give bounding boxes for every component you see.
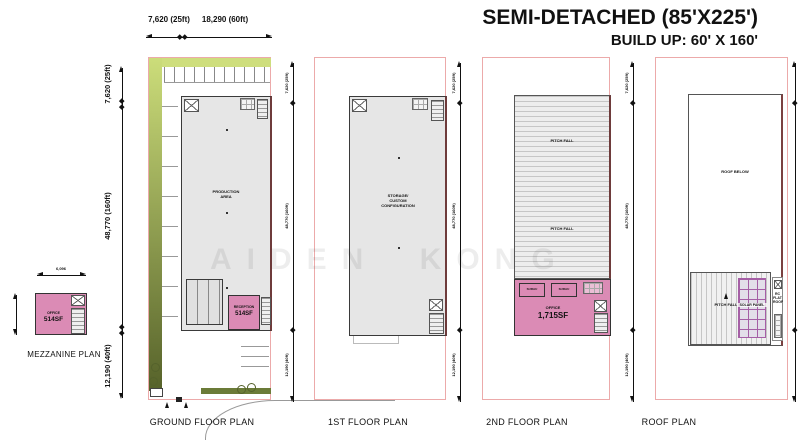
page-title: SEMI-DETACHED (85'X225'): [482, 6, 758, 30]
dimension-tick: [457, 100, 462, 105]
vent-grid: [774, 314, 782, 338]
landscape-strip-bottom: [201, 388, 271, 394]
vent-icon: [774, 280, 782, 289]
lift-shaft-icon: [429, 299, 443, 311]
pitched-roof: PITCH FALL SOLAR PANEL: [690, 272, 771, 345]
second-floor-plan-label: 2ND FLOOR PLAN: [486, 417, 568, 427]
pitch-fall-label: PITCH FALL: [515, 226, 609, 231]
dim-label-25ft: 7,620 (25ft): [144, 15, 194, 24]
staircase: [431, 100, 444, 121]
arrow-icon: [457, 396, 461, 402]
dimension-tick: [630, 327, 635, 332]
first-floor-plan: STORAGE/ CUSTOM CONFIGURATION: [314, 57, 446, 400]
staircase: [261, 297, 271, 325]
roof-plan-label: ROOF PLAN: [642, 417, 697, 427]
tree-icon: [149, 377, 158, 386]
column-dot: [398, 157, 400, 159]
dim-label-small: 12,190 (40ft): [623, 343, 631, 387]
dimension-line: [37, 275, 86, 276]
dimension-line: [633, 63, 634, 402]
landscape-strip-top: [162, 58, 271, 67]
dim-label-small: 48,770 (160ft): [450, 194, 458, 238]
parking-bays-top: [164, 67, 270, 83]
page-subtitle: BUILD UP: 60' X 160': [611, 32, 758, 49]
entry-arrow-icon: [165, 402, 169, 408]
roof-plan: ROOF BELOW PITCH FALL SOLAR PANEL RC FLA…: [655, 57, 788, 400]
surau-label: SURAU: [552, 288, 576, 292]
office-area-label: 514SF: [38, 316, 69, 324]
staircase: [71, 308, 85, 334]
toilet-block: [240, 98, 255, 110]
reception-room: RECEPTION 514SF: [228, 295, 260, 330]
dim-label-60ft: 18,290 (60ft): [196, 15, 254, 24]
guard-house: [150, 388, 163, 397]
parking-bay-line: [162, 166, 178, 167]
arrow-icon: [119, 66, 123, 72]
office-label: OFFICE: [38, 311, 69, 315]
lift-shaft-icon: [594, 300, 607, 312]
arrow-icon: [792, 61, 796, 67]
landscape-strip-left: [149, 58, 162, 391]
dimension-line: [460, 63, 461, 402]
canopy-outline: [353, 336, 399, 344]
toilet-block: [412, 98, 428, 110]
staircase: [257, 99, 268, 119]
tree-icon: [237, 385, 246, 394]
dim-label-small: 7,620 (25ft): [283, 61, 291, 105]
floor-plan-sheet: SEMI-DETACHED (85'X225') BUILD UP: 60' X…: [0, 0, 800, 443]
dim-label-small: 7,620 (25ft): [623, 61, 631, 105]
arrow-icon: [630, 396, 634, 402]
dimension-tick: [792, 327, 797, 332]
dimension-line: [293, 63, 294, 402]
parking-bay-line: [162, 196, 178, 197]
second-floor-office: SURAU SURAU OFFICE 1,715SF: [514, 279, 611, 336]
mezzanine-width-dim: 6,096: [43, 266, 79, 271]
dimension-tick: [119, 104, 124, 109]
toilet-block: [583, 282, 603, 294]
arrow-icon: [80, 272, 86, 276]
staircase: [429, 313, 444, 334]
dimension-line: [122, 68, 123, 398]
arrow-icon: [792, 396, 796, 402]
roof-below-label: ROOF BELOW: [689, 169, 781, 174]
dimension-tick: [119, 330, 124, 335]
parking-bay-line: [162, 286, 178, 287]
pitch-direction-arrow-icon: [724, 293, 728, 299]
arrow-icon: [290, 396, 294, 402]
rc-flat-roof-label: RC FLAT ROOF: [773, 292, 782, 305]
dimension-tick: [119, 98, 124, 103]
arrow-icon: [37, 272, 43, 276]
arrow-icon: [266, 34, 272, 38]
arrow-icon: [13, 293, 17, 299]
dim-label-160ft-vertical: 48,770 (160ft): [103, 186, 113, 246]
arrow-icon: [13, 329, 17, 335]
pitch-fall-label: PITCH FALL: [515, 138, 609, 143]
solar-panel-label: SOLAR PANEL: [737, 303, 767, 307]
dim-label-small: 12,190 (40ft): [283, 343, 291, 387]
roof-deck: PITCH FALL PITCH FALL: [514, 95, 611, 279]
parking-bay-line: [162, 226, 178, 227]
dimension-line: [795, 63, 796, 402]
ground-floor-plan: PRODUCTION AREA RECEPTION 514SF: [148, 57, 271, 400]
first-floor-plan-label: 1ST FLOOR PLAN: [328, 417, 408, 427]
dim-label-small: 7,620 (25ft): [450, 61, 458, 105]
arrow-icon: [119, 393, 123, 399]
storage-hall: STORAGE/ CUSTOM CONFIGURATION: [349, 96, 447, 336]
dimension-tick: [290, 327, 295, 332]
office-area-label: 1,715SF: [523, 311, 583, 321]
parking-bay-line: [162, 136, 178, 137]
dimension-tick: [290, 100, 295, 105]
dimension-line: [146, 37, 272, 38]
dimension-tick: [457, 327, 462, 332]
reception-area-label: 514SF: [229, 311, 259, 319]
column-dot: [226, 287, 228, 289]
mezzanine-plan-label: MEZZANINE PLAN: [27, 350, 101, 359]
dimension-tick: [630, 100, 635, 105]
roof-outline: ROOF BELOW PITCH FALL SOLAR PANEL RC FLA…: [688, 94, 783, 346]
parking-bay-line: [162, 256, 178, 257]
loading-bay: [186, 279, 223, 325]
dimension-tick: [182, 34, 187, 39]
parking-bay-line: [241, 346, 269, 347]
lift-shaft-icon: [184, 99, 199, 112]
column-dot: [226, 212, 228, 214]
parking-bay-line: [162, 316, 178, 317]
dim-label-40ft-vertical: 12,190 (40ft): [103, 336, 113, 396]
tree-icon: [151, 363, 160, 372]
production-area-label: PRODUCTION AREA: [202, 189, 250, 199]
staircase: [594, 313, 608, 333]
dim-label-small: 48,770 (160ft): [623, 194, 631, 238]
lift-shaft-icon: [352, 99, 367, 112]
surau-room: SURAU: [551, 283, 577, 297]
entry-arrow-icon: [184, 402, 188, 408]
surau-label: SURAU: [520, 288, 544, 292]
toilet-icon: [71, 295, 85, 306]
gate-marker: [176, 397, 182, 402]
ground-floor-plan-label: GROUND FLOOR PLAN: [150, 417, 255, 427]
second-floor-plan: PITCH FALL PITCH FALL SURAU SURAU OFFICE…: [482, 57, 610, 400]
column-dot: [226, 129, 228, 131]
storage-label: STORAGE/ CUSTOM CONFIGURATION: [368, 193, 428, 209]
tree-icon: [247, 383, 256, 392]
parking-bay-line: [241, 356, 269, 357]
column-dot: [398, 247, 400, 249]
dim-label-25ft-vertical: 7,620 (25ft): [103, 54, 113, 114]
dim-label-small: 12,190 (40ft): [450, 343, 458, 387]
reception-label: RECEPTION: [229, 305, 259, 309]
flat-roof-strip: RC FLAT ROOF: [772, 277, 783, 341]
dim-label-small: 48,770 (160ft): [283, 194, 291, 238]
parking-bay-line: [162, 106, 178, 107]
dimension-tick: [792, 100, 797, 105]
arrow-icon: [146, 34, 152, 38]
mezzanine-office: OFFICE 514SF: [35, 293, 87, 335]
parking-bay-line: [241, 366, 269, 367]
surau-room: SURAU: [519, 283, 545, 297]
solar-panel-array: SOLAR PANEL: [738, 278, 766, 338]
production-hall: PRODUCTION AREA RECEPTION 514SF: [181, 96, 272, 331]
dimension-tick: [119, 324, 124, 329]
